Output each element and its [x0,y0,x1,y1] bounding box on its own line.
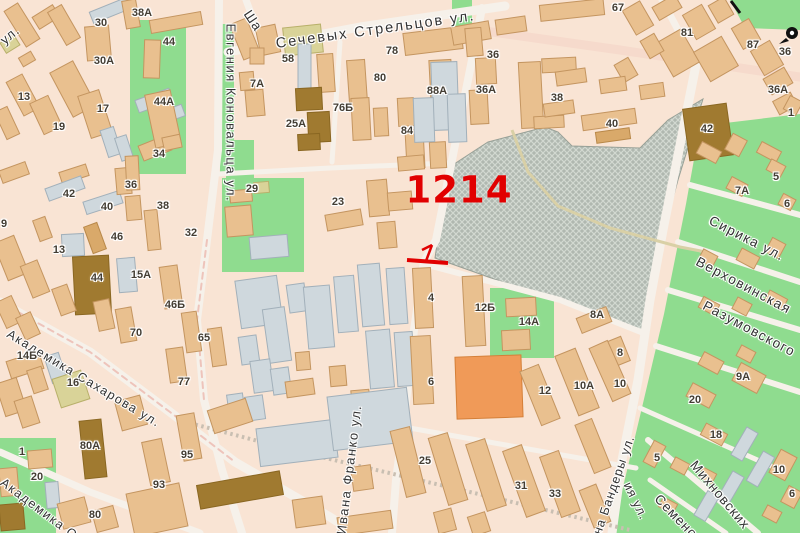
transit-stop-icon [779,27,798,44]
route-number-callout: 1214 [406,169,513,212]
map-canvas[interactable]: Сечевых Стрельцов ул.Шаул.Евгения Конова… [0,0,800,533]
map-graphics [0,0,800,533]
